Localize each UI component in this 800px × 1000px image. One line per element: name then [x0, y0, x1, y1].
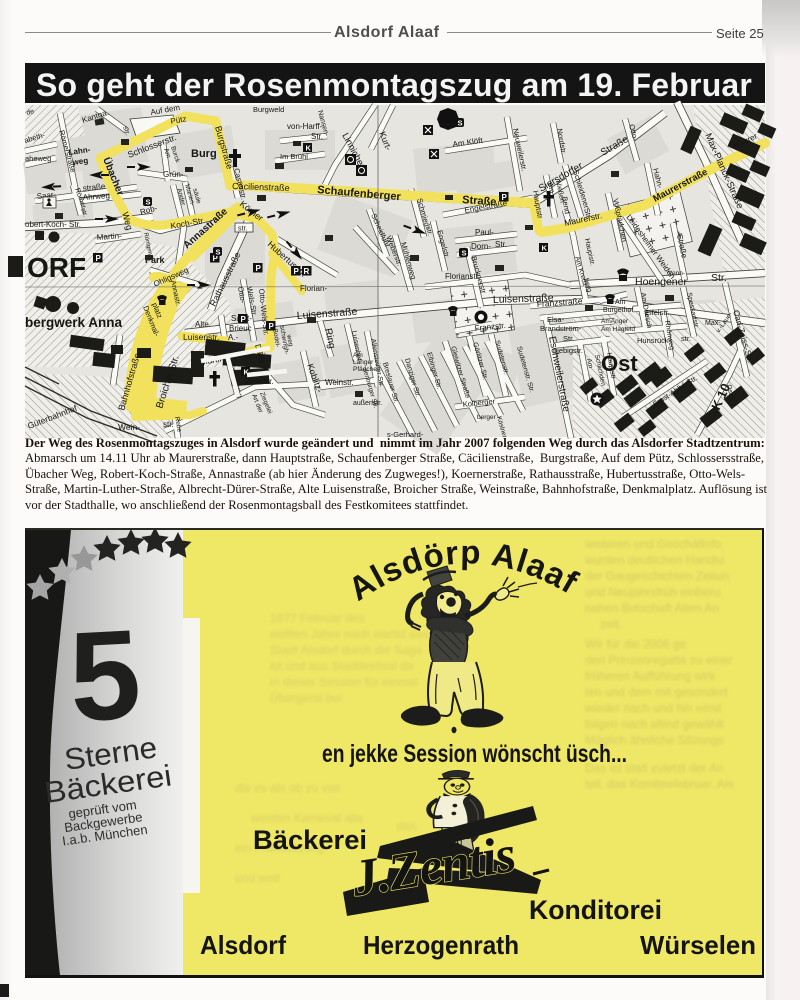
- svg-text:Ost: Ost: [601, 351, 638, 376]
- svg-text:Weinstr.: Weinstr.: [245, 377, 274, 386]
- svg-text:AmAnger: AmAnger: [601, 318, 629, 325]
- svg-text:Stadt Alsdorf durch die Saga: Stadt Alsdorf durch die Saga: [270, 643, 422, 657]
- svg-text:P: P: [502, 193, 508, 202]
- svg-text:P: P: [96, 254, 102, 263]
- svg-text:wurden deutlichen Handlu: wurden deutlichen Handlu: [584, 553, 724, 567]
- svg-text:Brandström-: Brandström-: [540, 324, 582, 333]
- svg-text:Str.: Str.: [311, 132, 323, 141]
- svg-text:en jekke Session wönscht üsch.: en jekke Session wönscht üsch...: [322, 740, 627, 768]
- svg-text:Alsdorf: Alsdorf: [200, 930, 286, 960]
- svg-text:Brieuc: Brieuc: [229, 324, 252, 333]
- svg-text:Dorn-: Dorn-: [471, 242, 491, 251]
- svg-text:Wir für die 2006 ge: Wir für die 2006 ge: [585, 637, 687, 651]
- svg-text:K: K: [542, 244, 548, 253]
- svg-text:Burgweld: Burgweld: [253, 105, 284, 114]
- svg-text:teil, das Komiteefebruar. Als: teil, das Komiteefebruar. Als: [585, 777, 734, 791]
- svg-text:ORF: ORF: [27, 252, 86, 283]
- svg-text:wieder nach und hin einst: wieder nach und hin einst: [584, 701, 722, 715]
- svg-text:str.: str.: [163, 420, 174, 429]
- svg-text:folgen nach altind gewählt: folgen nach altind gewählt: [585, 717, 724, 731]
- svg-text:Weinstr.: Weinstr.: [325, 378, 354, 387]
- svg-text:aheweg: aheweg: [25, 154, 51, 163]
- svg-text:zeit.: zeit.: [600, 617, 622, 631]
- svg-text:Liebigstr.: Liebigstr.: [553, 346, 583, 355]
- svg-text:Am: Am: [615, 299, 626, 306]
- svg-text:S: S: [216, 248, 221, 257]
- svg-text:R: R: [304, 267, 310, 276]
- svg-text:obert-Koch- Str.: obert-Koch- Str.: [25, 220, 81, 229]
- svg-text:wollten Jahre nach wartet das: wollten Jahre nach wartet das: [269, 627, 429, 641]
- svg-text:K: K: [306, 144, 312, 153]
- svg-text:S: S: [462, 249, 467, 258]
- svg-text:früheren Aufführung wirk: früheren Aufführung wirk: [585, 669, 717, 683]
- svg-text:in dieser Session für einmal: in dieser Session für einmal: [270, 675, 417, 689]
- svg-text:die es als ob zu viel: die es als ob zu viel: [235, 781, 340, 795]
- svg-text:Alte: Alte: [195, 320, 209, 329]
- svg-text:Str.: Str.: [563, 334, 574, 343]
- svg-text:Elsa-: Elsa-: [547, 315, 565, 324]
- svg-text:Konditorei: Konditorei: [529, 895, 662, 925]
- svg-text:str.: str.: [238, 226, 247, 233]
- svg-text:P: P: [294, 267, 300, 276]
- svg-text:S: S: [146, 198, 151, 207]
- svg-text:weiteren und Geschäftsfo: weiteren und Geschäftsfo: [584, 537, 721, 551]
- svg-text:ist und aus Stadtfestival da: ist und aus Stadtfestival da: [270, 659, 414, 673]
- svg-text:Str.: Str.: [711, 272, 727, 284]
- svg-text:der Gaugeschichten Zeitun: der Gaugeschichten Zeitun: [585, 569, 729, 583]
- svg-text:ten und dem mit gesondert: ten und dem mit gesondert: [585, 685, 728, 699]
- svg-text:das: das: [397, 819, 416, 833]
- svg-text:Übergend bei: Übergend bei: [270, 691, 342, 705]
- svg-text:und Neujahrsfrüh einberu: und Neujahrsfrüh einberu: [585, 585, 720, 599]
- svg-text:Wein-: Wein-: [118, 422, 140, 432]
- svg-text:1977 Februar des: 1977 Februar des: [270, 611, 365, 625]
- svg-text:Burgethof: Burgethof: [603, 307, 633, 314]
- svg-text:Langer: Langer: [353, 359, 374, 366]
- svg-text:Str.: Str.: [495, 240, 507, 249]
- svg-text:P: P: [256, 264, 262, 273]
- svg-text:Florian-: Florian-: [300, 284, 327, 293]
- svg-text:berger: berger: [477, 414, 497, 421]
- svg-text:Luisenstr.: Luisenstr.: [183, 332, 219, 342]
- svg-text:Paul-: Paul-: [475, 228, 494, 237]
- svg-text:J.Zentis: J.Zentis: [347, 826, 519, 908]
- svg-text:werden Karneval alle: werden Karneval alle: [250, 811, 363, 825]
- svg-text:Florianstr.: Florianstr.: [445, 272, 480, 281]
- svg-text:Am Hagteld: Am Hagteld: [601, 326, 635, 333]
- svg-text:Würselen: Würselen: [640, 930, 756, 960]
- svg-text:Burg: Burg: [191, 148, 217, 160]
- svg-text:von-Harff-: von-Harff-: [287, 122, 323, 131]
- svg-text:Am: Am: [353, 352, 363, 359]
- svg-text:Im Brühl: Im Brühl: [280, 152, 308, 161]
- svg-text:A.-: A.-: [228, 333, 239, 342]
- svg-text:P: P: [241, 315, 247, 324]
- svg-text:str.: str.: [681, 334, 691, 343]
- svg-text:5: 5: [66, 602, 144, 748]
- svg-text:Ahrweg: Ahrweg: [83, 191, 111, 202]
- svg-text:und weit: und weit: [235, 871, 280, 885]
- svg-text:nahen Botschaft Alten An: nahen Botschaft Alten An: [585, 601, 719, 615]
- svg-text:Martin-: Martin-: [97, 231, 123, 242]
- svg-text:Herzogenrath: Herzogenrath: [363, 930, 519, 960]
- svg-text:P: P: [269, 322, 275, 331]
- svg-text:bergwerk Anna: bergwerk Anna: [25, 315, 123, 330]
- svg-text:Grün-: Grün-: [163, 170, 184, 179]
- svg-text:den Prinzenregatta zu einer: den Prinzenregatta zu einer: [585, 653, 732, 667]
